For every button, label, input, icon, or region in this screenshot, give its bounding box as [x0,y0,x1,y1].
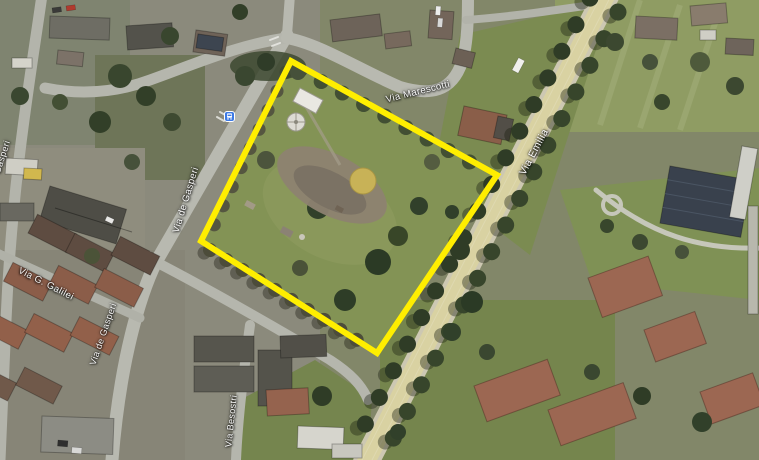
round-lawn-feature [350,168,376,194]
bus-glyph [224,111,235,122]
satellite-map-canvas[interactable]: Via Marescotti Via Emilia Via de Gasperi… [0,0,759,460]
carousel [287,113,305,131]
satellite-imagery [0,0,759,460]
bus-stop-icon[interactable] [224,109,235,120]
